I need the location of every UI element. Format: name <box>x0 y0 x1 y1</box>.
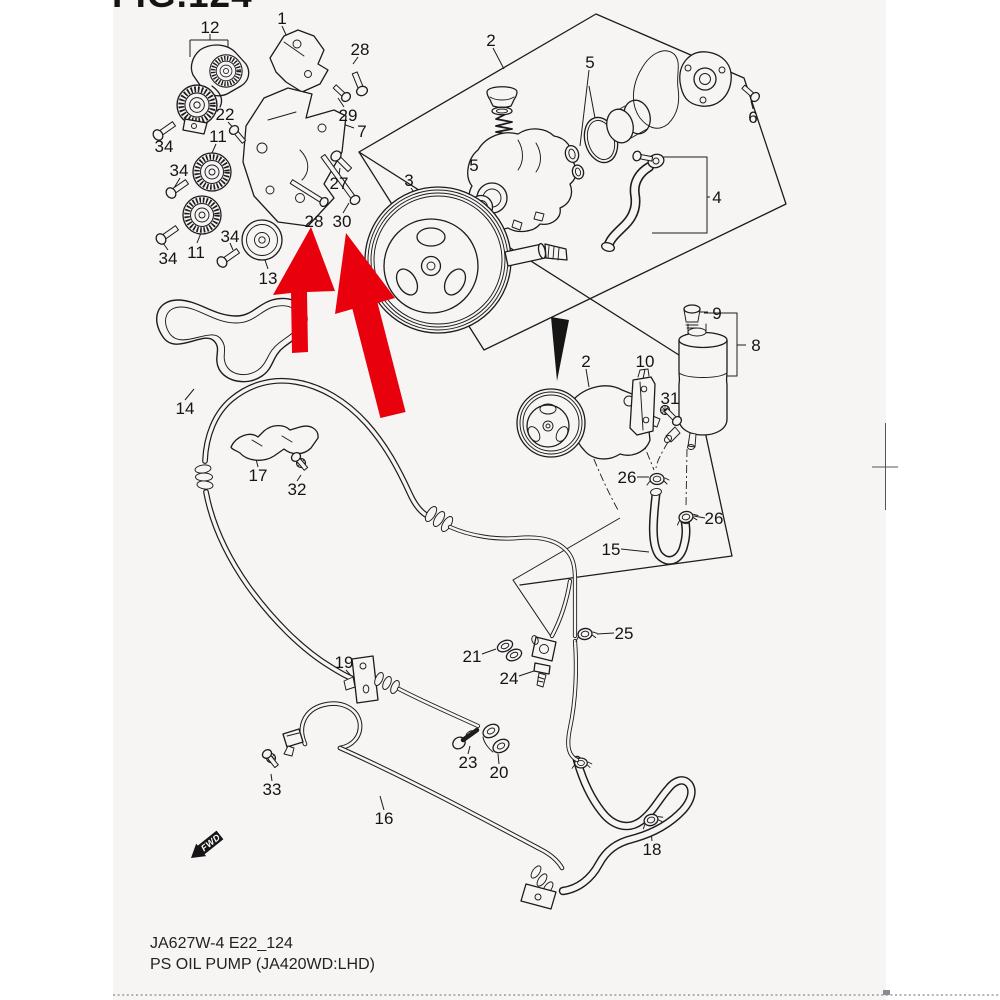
part-label-34: 34 <box>159 249 178 268</box>
part-label-33: 33 <box>263 780 282 799</box>
parts-catalog-page: FIG.124 <box>0 0 1000 1000</box>
part-label-13: 13 <box>259 269 278 288</box>
part-label-30: 30 <box>333 212 352 231</box>
part-label-11: 11 <box>187 243 205 262</box>
part-label-29: 29 <box>339 106 358 125</box>
part-label-18: 18 <box>643 840 662 859</box>
part-label-28: 28 <box>351 40 370 59</box>
part-label-10: 10 <box>636 352 655 371</box>
idler-pulley-11b <box>183 196 221 234</box>
oil-pump-diagram: FIG.124 <box>0 0 1000 1000</box>
part-label-34: 34 <box>170 161 189 180</box>
idler-pulley-11a <box>193 153 231 191</box>
part-label-32: 32 <box>288 480 307 499</box>
part-label-19: 19 <box>335 653 354 672</box>
part-label-11: 11 <box>209 127 227 146</box>
part-label-4: 4 <box>712 188 721 207</box>
part-label-12: 12 <box>201 18 220 37</box>
filler-cap-9 <box>684 305 700 313</box>
part-label-16: 16 <box>375 809 394 828</box>
part-label-25: 25 <box>615 624 634 643</box>
part-label-14: 14 <box>176 399 195 418</box>
footer-title: PS OIL PUMP (JA420WD:LHD) <box>150 956 375 973</box>
part-label-6: 6 <box>748 108 757 127</box>
footer-code: JA627W-4 E22_124 <box>150 935 293 952</box>
part-label-26: 26 <box>618 468 637 487</box>
part-label-17: 17 <box>249 466 268 485</box>
part-label-34: 34 <box>155 137 174 156</box>
part-label-31: 31 <box>661 389 680 408</box>
idler-pulley-13 <box>242 220 282 260</box>
part-label-24: 24 <box>500 669 519 688</box>
part-label-22: 22 <box>216 105 235 124</box>
part-label-21: 21 <box>463 647 482 666</box>
part-label-3: 3 <box>404 171 413 190</box>
part-label-23: 23 <box>459 753 478 772</box>
figure-title: FIG.124 <box>112 0 253 15</box>
part-label-7: 7 <box>357 122 366 141</box>
part-label-26: 26 <box>705 509 724 528</box>
part-label-20: 20 <box>490 763 509 782</box>
part-label-5: 5 <box>469 156 478 175</box>
part-label-2: 2 <box>486 31 495 50</box>
part-label-9: 9 <box>712 304 721 323</box>
reservoir-tank-8 <box>679 340 727 435</box>
part-label-27: 27 <box>330 174 349 193</box>
part-label-1: 1 <box>277 9 286 28</box>
part-label-2: 2 <box>581 352 590 371</box>
banjo-fitting <box>532 637 556 661</box>
part-label-28: 28 <box>305 212 324 231</box>
part-label-34: 34 <box>221 227 240 246</box>
part-label-15: 15 <box>602 540 621 559</box>
part-label-5: 5 <box>585 53 594 72</box>
part-label-8: 8 <box>751 336 760 355</box>
